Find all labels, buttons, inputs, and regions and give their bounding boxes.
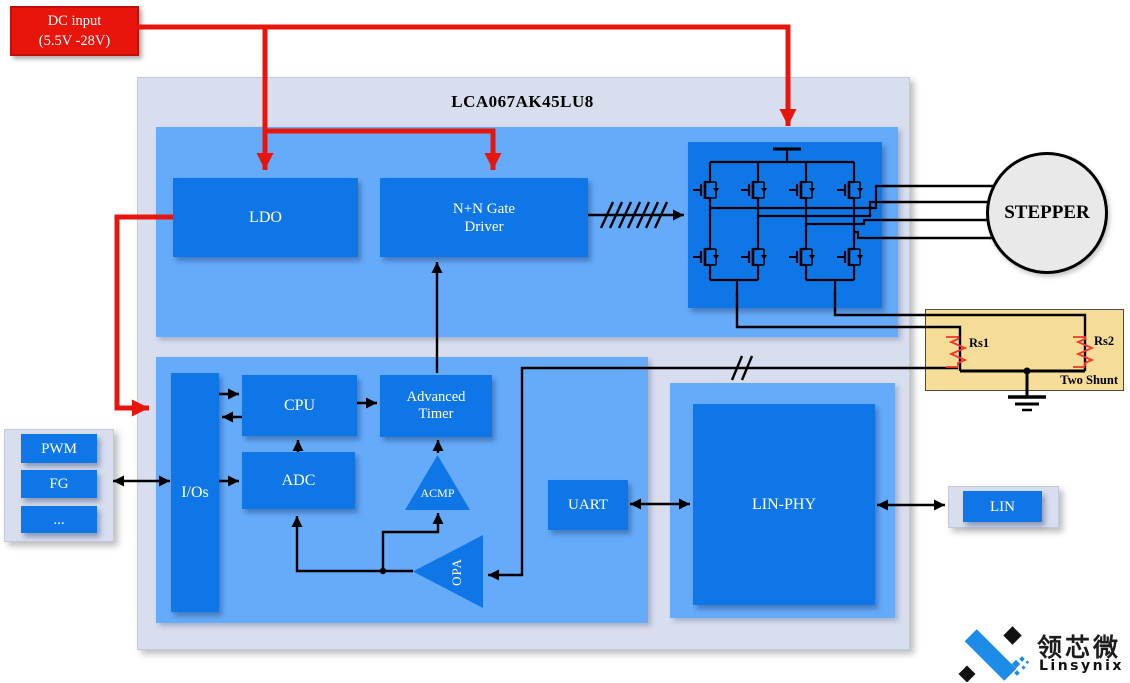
cpu-block: CPU — [242, 375, 357, 436]
lin-phy-label: LIN-PHY — [752, 495, 816, 514]
uart-label: UART — [568, 496, 608, 514]
more-signals-label: ... — [53, 511, 64, 529]
two-shunt-caption: Two Shunt — [1060, 373, 1118, 388]
more-signals-block: ... — [21, 506, 97, 533]
logo-en-text: Linsynix — [1039, 658, 1124, 674]
advanced-timer-block: Advanced Timer — [380, 375, 492, 437]
rs2-label: Rs2 — [1094, 334, 1114, 349]
gate-driver-label-line2: Driver — [464, 218, 503, 236]
stepper-motor: STEPPER — [986, 152, 1108, 274]
ldo-label: LDO — [249, 208, 282, 227]
lin-block: LIN — [963, 491, 1042, 522]
lin-connector-panel: LIN — [948, 486, 1059, 528]
pwm-block: PWM — [21, 434, 97, 463]
cpu-label: CPU — [284, 396, 315, 415]
dc-input-box: DC input (5.5V -28V) — [10, 6, 139, 56]
fg-label: FG — [49, 475, 68, 493]
lin-phy-block: LIN-PHY — [693, 404, 875, 605]
dc-input-line1: DC input — [48, 11, 102, 31]
fg-block: FG — [21, 470, 97, 498]
dc-input-line2: (5.5V -28V) — [39, 31, 110, 51]
block-diagram: DC input (5.5V -28V) LCA067AK45LU8 LDO N… — [0, 0, 1130, 683]
opa-label: OPA — [449, 558, 465, 586]
acmp-label: ACMP — [420, 486, 454, 501]
linsynix-logo-icon — [955, 624, 1035, 682]
advanced-timer-label-line2: Timer — [419, 406, 454, 423]
two-shunt-box: Rs1 Rs2 Two Shunt — [925, 309, 1124, 391]
adc-block: ADC — [242, 452, 355, 509]
linsynix-logo: 领芯微 Linsynix — [955, 624, 1127, 682]
adc-label: ADC — [282, 471, 316, 490]
mosfet-bridge-block — [688, 142, 882, 308]
io-signals-panel: PWM FG ... — [4, 429, 114, 542]
stepper-label: STEPPER — [1004, 202, 1090, 224]
gate-driver-label-line1: N+N Gate — [453, 200, 515, 218]
advanced-timer-label-line1: Advanced — [407, 389, 466, 406]
ios-block: I/Os — [171, 373, 219, 612]
pwm-label: PWM — [41, 440, 77, 458]
rs1-label: Rs1 — [969, 336, 989, 351]
ios-label: I/Os — [181, 483, 209, 502]
lin-label: LIN — [990, 498, 1015, 516]
ldo-block: LDO — [173, 178, 358, 257]
uart-block: UART — [548, 480, 628, 530]
gate-driver-block: N+N Gate Driver — [380, 178, 588, 257]
chip-title: LCA067AK45LU8 — [137, 92, 908, 112]
